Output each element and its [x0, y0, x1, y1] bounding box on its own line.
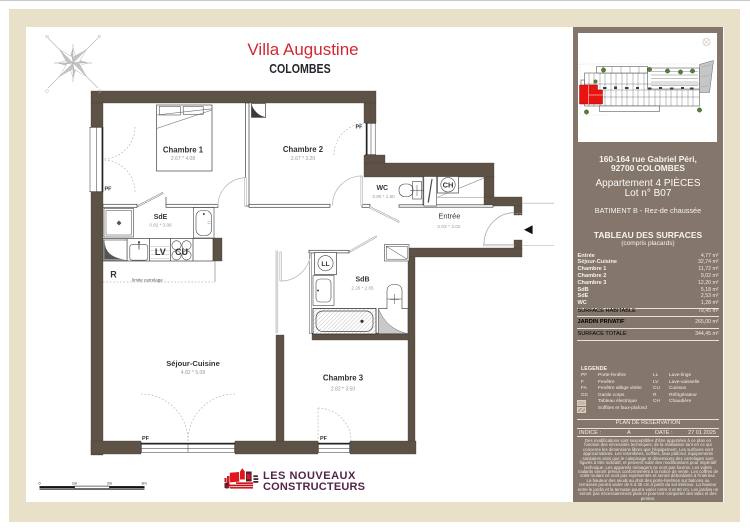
svg-text:Chambre 3: Chambre 3 [323, 374, 364, 383]
svg-text:WC: WC [376, 185, 388, 192]
svg-text:0.82 * 3.08: 0.82 * 3.08 [149, 223, 172, 228]
svg-text:CU: CU [175, 247, 188, 257]
svg-text:2.03 * 3.02: 2.03 * 3.02 [437, 224, 461, 230]
svg-text:R: R [110, 270, 117, 280]
svg-text:2.67 * 3.20: 2.67 * 3.20 [291, 156, 315, 162]
svg-text:0.85 * 1.50: 0.85 * 1.50 [372, 194, 395, 199]
svg-text:2m: 2m [107, 482, 112, 486]
svg-text:PF: PF [356, 125, 364, 131]
svg-text:SdB: SdB [356, 277, 370, 284]
svg-text:LL: LL [321, 261, 329, 268]
svg-text:N: N [45, 34, 48, 39]
svg-text:2.82 * 3.50: 2.82 * 3.50 [331, 387, 355, 393]
svg-text:S: S [98, 89, 101, 94]
svg-text:LV: LV [155, 247, 166, 257]
svg-text:4.82 * 5.08: 4.82 * 5.08 [181, 370, 205, 376]
svg-text:Entrée: Entrée [438, 212, 460, 221]
svg-text:limite carrelage: limite carrelage [132, 277, 163, 282]
svg-text:CH: CH [443, 181, 454, 190]
svg-text:3m: 3m [141, 482, 146, 486]
svg-text:O: O [45, 89, 49, 94]
svg-text:PF: PF [142, 436, 150, 442]
svg-text:Chambre 2: Chambre 2 [283, 145, 324, 154]
svg-text:Séjour-Cuisine: Séjour-Cuisine [166, 359, 220, 368]
svg-text:Chambre 1: Chambre 1 [163, 146, 204, 155]
svg-text:E: E [98, 34, 101, 39]
svg-text:CONSTRUCTEURS: CONSTRUCTEURS [263, 481, 365, 493]
svg-text:SdE: SdE [154, 214, 168, 221]
svg-text:2.67 * 4.08: 2.67 * 4.08 [171, 156, 195, 162]
svg-text:0: 0 [38, 482, 40, 486]
svg-text:2.26 * 2.65: 2.26 * 2.65 [351, 286, 374, 291]
svg-text:PF: PF [320, 436, 328, 442]
svg-text:PF: PF [105, 187, 113, 193]
svg-text:1m: 1m [72, 482, 77, 486]
